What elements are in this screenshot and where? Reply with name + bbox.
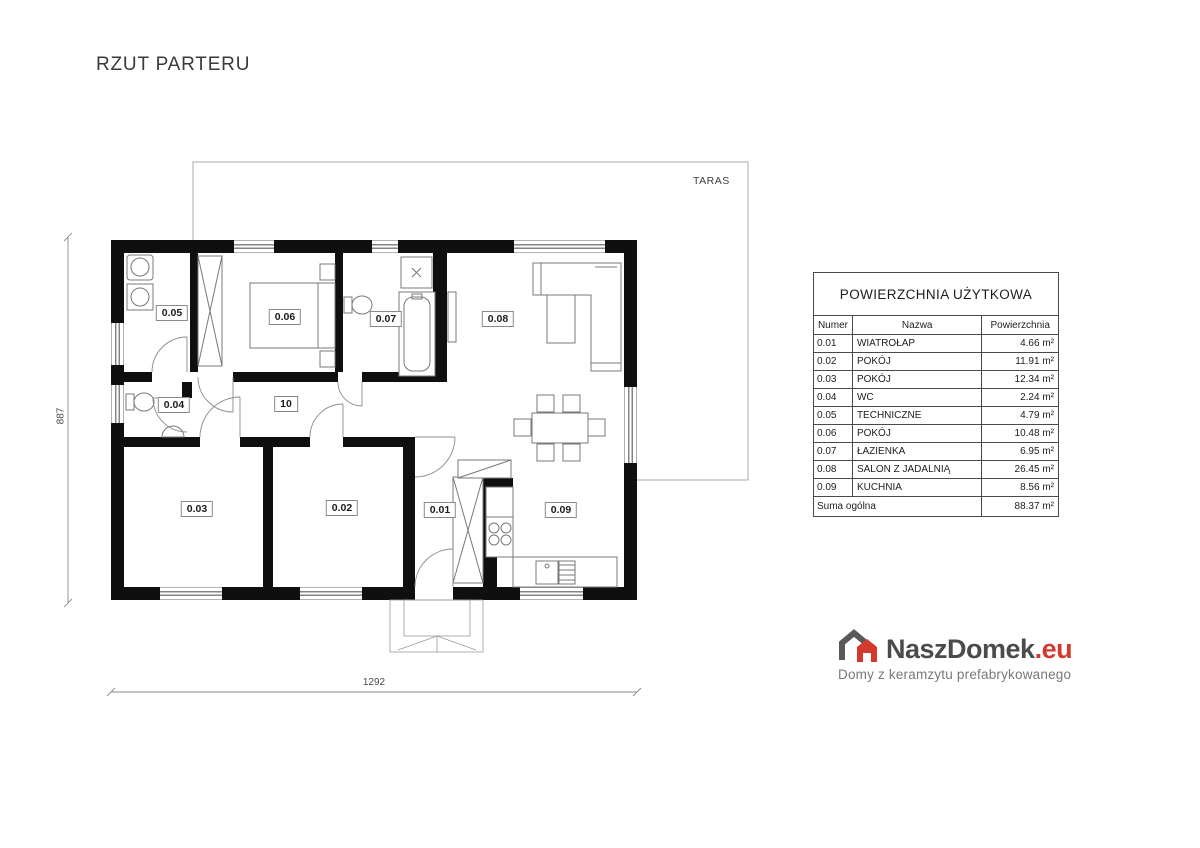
table-row: 0.09 KUCHNIA 8.56 m² [814,479,1059,497]
table-row: 0.01 WIATROŁAP 4.66 m² [814,335,1059,353]
entrance-porch [390,600,483,652]
room-number: 0.05 [814,407,853,425]
room-label-007: 0.07 [370,311,402,327]
wardrobe-closet [198,256,222,366]
logo-tagline: Domy z keramzytu prefabrykowanego [838,667,1098,682]
column-header-powierzchnia: Powierzchnia [982,316,1059,335]
area-table-title: POWIERZCHNIA UŻYTKOWA [814,273,1059,316]
room-area: 2.24 m² [982,389,1059,407]
room-number: 0.02 [814,353,853,371]
room-name: POKÓJ [852,353,982,371]
room-name: ŁAZIENKA [852,443,982,461]
room-label-002: 0.02 [326,500,358,516]
room-area: 10.48 m² [982,425,1059,443]
house-logo-icon [838,629,880,663]
column-header-numer: Numer [814,316,853,335]
room-number: 0.03 [814,371,853,389]
room-label-008: 0.08 [482,311,514,327]
table-row: 0.02 POKÓJ 11.91 m² [814,353,1059,371]
room-label-004: 0.04 [158,397,190,413]
table-total-row: Suma ogólna 88.37 m² [814,497,1059,517]
room-name: POKÓJ [852,371,982,389]
logo-tld: .eu [1035,634,1073,664]
room-label-001: 0.01 [424,502,456,518]
room-number: 0.06 [814,425,853,443]
room-area: 26.45 m² [982,461,1059,479]
room-number: 0.04 [814,389,853,407]
room-label-005: 0.05 [156,305,188,321]
logo-name-main: NaszDomek [886,634,1035,664]
room-number: 0.08 [814,461,853,479]
table-row: 0.08 SALON Z JADALNIĄ 26.45 m² [814,461,1059,479]
company-logo: NaszDomek.eu Domy z keramzytu prefabryko… [838,629,1098,682]
room-area: 4.66 m² [982,335,1059,353]
room-name: TECHNICZNE [852,407,982,425]
dimension-height-label: 887 [56,408,67,425]
table-row: 0.04 WC 2.24 m² [814,389,1059,407]
total-value: 88.37 m² [982,497,1059,517]
room-label-hall: 10 [274,396,298,412]
table-row: 0.06 POKÓJ 10.48 m² [814,425,1059,443]
room-number: 0.09 [814,479,853,497]
room-number: 0.07 [814,443,853,461]
room-name: POKÓJ [852,425,982,443]
room-label-003: 0.03 [181,501,213,517]
room-area: 6.95 m² [982,443,1059,461]
room-area: 4.79 m² [982,407,1059,425]
dimension-width-label: 1292 [363,677,385,688]
room-area: 8.56 m² [982,479,1059,497]
table-row: 0.03 POKÓJ 12.34 m² [814,371,1059,389]
room-area: 11.91 m² [982,353,1059,371]
room-name: WC [852,389,982,407]
column-header-nazwa: Nazwa [852,316,982,335]
table-row: 0.07 ŁAZIENKA 6.95 m² [814,443,1059,461]
room-label-006: 0.06 [269,309,301,325]
room-name: WIATROŁAP [852,335,982,353]
room-label-009: 0.09 [545,502,577,518]
table-row: 0.05 TECHNICZNE 4.79 m² [814,407,1059,425]
total-label: Suma ogólna [814,497,982,517]
area-table-header-row: Numer Nazwa Powierzchnia [814,316,1059,335]
logo-name: NaszDomek.eu [886,636,1072,663]
floor-plan-page: RZUT PARTERU [0,0,1200,848]
room-area: 12.34 m² [982,371,1059,389]
terrace-label: TARAS [693,175,730,187]
floor-plan-drawing [0,0,800,710]
room-number: 0.01 [814,335,853,353]
room-name: SALON Z JADALNIĄ [852,461,982,479]
area-table: POWIERZCHNIA UŻYTKOWA Numer Nazwa Powier… [813,272,1059,517]
room-name: KUCHNIA [852,479,982,497]
